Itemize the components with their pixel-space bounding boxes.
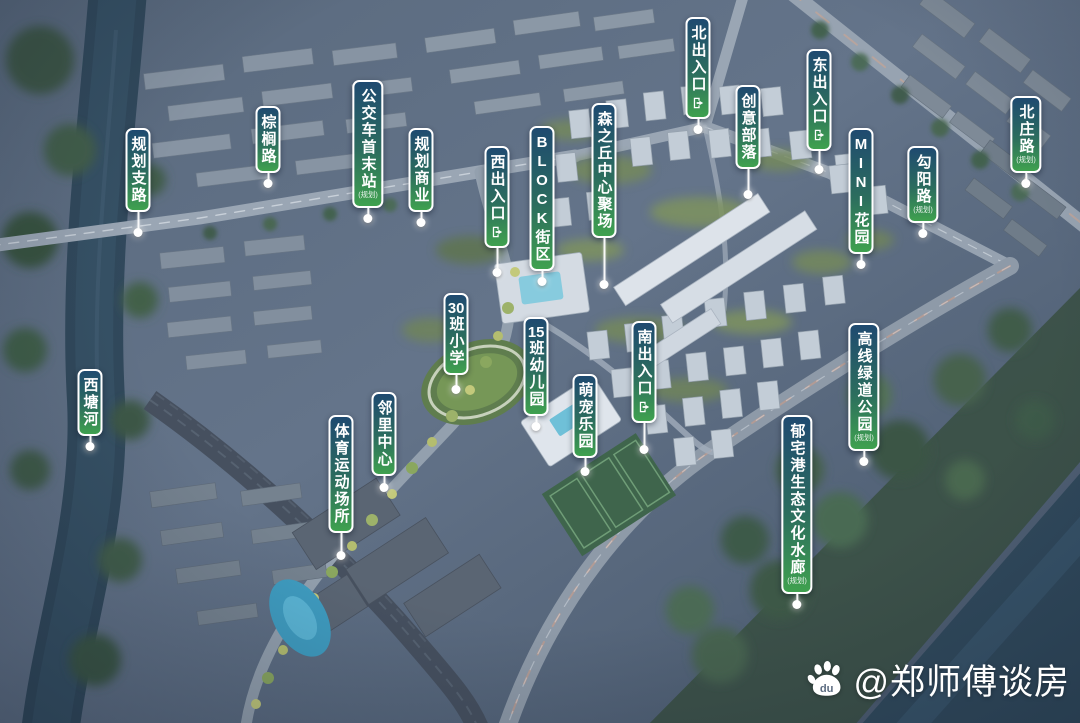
map-label-block-street: BLOCK街区	[530, 126, 555, 286]
label-pill: 西出入口	[485, 146, 510, 248]
map-label-east-entrance: 东出入口	[807, 49, 832, 174]
label-text: 郁宅港生态文化水廊	[789, 423, 804, 576]
label-pill: 勾阳路(规划)	[907, 146, 938, 223]
label-pill: 北出入口	[686, 17, 711, 119]
site-plan-rendering: 规划支路棕榈路公交车首末站(规划)规划商业西出入口BLOCK街区森之丘中心聚场北…	[0, 0, 1080, 723]
watermark-text: @郑师傅谈房	[853, 654, 1070, 705]
leader-line	[367, 208, 369, 215]
anchor-dot	[380, 483, 389, 492]
label-pill: 森之丘中心聚场	[592, 103, 617, 238]
label-note: (规划)	[854, 433, 874, 442]
label-text: 北出入口	[691, 25, 706, 93]
label-text: 规划支路	[131, 136, 146, 204]
label-pill: 郁宅港生态文化水廊(规划)	[781, 415, 812, 594]
label-note: (规划)	[787, 576, 807, 585]
map-label-mini-garden: MINI花园	[849, 128, 874, 269]
label-pill: 规划支路	[126, 128, 151, 212]
exit-icon	[490, 225, 504, 239]
map-label-primary-school: 30班小学	[444, 293, 469, 394]
leader-line	[818, 151, 820, 166]
label-text: 北庄路	[1018, 104, 1033, 155]
label-pill: 西塘河	[78, 369, 103, 436]
leader-line	[340, 533, 342, 552]
anchor-dot	[363, 214, 372, 223]
svg-text:du: du	[820, 682, 834, 694]
anchor-dot	[532, 422, 541, 431]
leader-line	[643, 423, 645, 446]
baidu-paw-icon: du	[805, 659, 847, 701]
label-text: 规划商业	[414, 136, 429, 204]
label-pill: 创意部落	[736, 85, 761, 169]
leader-line	[535, 416, 537, 423]
exit-icon	[637, 400, 651, 414]
label-pill: 高线绿道公园(规划)	[848, 323, 879, 451]
label-text: 邻里中心	[377, 400, 392, 468]
map-label-beizhuang-road: 北庄路(规划)	[1010, 96, 1041, 188]
label-text: 棕榈路	[261, 114, 276, 165]
map-label-north-entrance: 北出入口	[686, 17, 711, 134]
map-label-sports-area: 体育运动场所	[329, 415, 354, 560]
label-text: 西塘河	[83, 377, 98, 428]
map-label-yuzhai-eco-corridor: 郁宅港生态文化水廊(规划)	[781, 415, 812, 609]
anchor-dot	[859, 457, 868, 466]
map-label-forest-hill-plaza: 森之丘中心聚场	[592, 103, 617, 289]
map-label-kindergarten: 15班幼儿园	[524, 317, 549, 431]
label-text: 东出入口	[812, 57, 827, 125]
map-label-guihua-zhilu: 规划支路	[126, 128, 151, 237]
map-label-pet-park: 萌宠乐园	[573, 374, 598, 476]
anchor-dot	[452, 385, 461, 394]
label-pill: BLOCK街区	[530, 126, 555, 271]
label-pill: 萌宠乐园	[573, 374, 598, 458]
leader-line	[584, 458, 586, 468]
anchor-dot	[600, 280, 609, 289]
leader-line	[1025, 173, 1027, 180]
leader-line	[922, 223, 924, 230]
label-text: 森之丘中心聚场	[597, 111, 612, 230]
label-pill: 15班幼儿园	[524, 317, 549, 416]
label-text: 萌宠乐园	[578, 382, 593, 450]
leader-line	[267, 173, 269, 180]
label-text: 体育运动场所	[334, 423, 349, 525]
anchor-dot	[640, 445, 649, 454]
map-label-highline-greenway-park: 高线绿道公园(规划)	[848, 323, 879, 466]
label-pill: 北庄路(规划)	[1010, 96, 1041, 173]
label-pill: 公交车首末站(规划)	[352, 80, 383, 208]
anchor-dot	[264, 179, 273, 188]
label-text: BLOCK街区	[535, 134, 550, 263]
label-pill: 体育运动场所	[329, 415, 354, 533]
leader-line	[747, 169, 749, 191]
label-pill: 邻里中心	[372, 392, 397, 476]
label-text: 高线绿道公园	[856, 331, 871, 433]
anchor-dot	[417, 218, 426, 227]
label-pill: MINI花园	[849, 128, 874, 254]
anchor-dot	[337, 551, 346, 560]
exit-icon	[691, 96, 705, 110]
label-pill: 棕榈路	[256, 106, 281, 173]
leader-line	[697, 119, 699, 126]
watermark: du @郑师傅谈房	[805, 654, 1070, 705]
label-text: 西出入口	[490, 154, 505, 222]
map-label-xitang-river: 西塘河	[78, 369, 103, 451]
anchor-dot	[538, 277, 547, 286]
leader-line	[89, 436, 91, 443]
map-label-gouyang-road: 勾阳路(规划)	[907, 146, 938, 238]
label-text: 公交车首末站	[360, 88, 375, 190]
label-text: MINI花园	[854, 136, 869, 246]
leader-line	[420, 212, 422, 219]
anchor-dot	[86, 442, 95, 451]
leader-line	[496, 248, 498, 269]
anchor-dot	[493, 268, 502, 277]
anchor-dot	[744, 190, 753, 199]
map-label-bus-terminus: 公交车首末站(规划)	[352, 80, 383, 223]
map-label-guihua-shangye: 规划商业	[409, 128, 434, 227]
label-note: (规划)	[1016, 155, 1036, 164]
label-text: 勾阳路	[915, 154, 930, 205]
leader-line	[603, 238, 605, 281]
leader-line	[860, 254, 862, 261]
anchor-dot	[792, 600, 801, 609]
label-text: 南出入口	[637, 329, 652, 397]
leader-line	[383, 476, 385, 484]
leader-line	[863, 451, 865, 458]
map-label-neighborhood-center: 邻里中心	[372, 392, 397, 492]
label-text: 30班小学	[449, 301, 464, 367]
map-label-creative-tribe: 创意部落	[736, 85, 761, 199]
anchor-dot	[134, 228, 143, 237]
leader-line	[455, 375, 457, 386]
map-label-south-entrance: 南出入口	[632, 321, 657, 454]
map-label-zonglv-road: 棕榈路	[256, 106, 281, 188]
anchor-dot	[918, 229, 927, 238]
label-pill: 30班小学	[444, 293, 469, 375]
anchor-dot	[581, 467, 590, 476]
label-pill: 规划商业	[409, 128, 434, 212]
label-text: 15班幼儿园	[529, 325, 544, 408]
label-pill: 南出入口	[632, 321, 657, 423]
leader-line	[137, 212, 139, 229]
anchor-dot	[815, 165, 824, 174]
exit-icon	[812, 128, 826, 142]
leader-line	[541, 271, 543, 278]
leader-line	[796, 594, 798, 601]
map-label-west-entrance: 西出入口	[485, 146, 510, 277]
label-note: (规划)	[358, 190, 378, 199]
label-pill: 东出入口	[807, 49, 832, 151]
anchor-dot	[857, 260, 866, 269]
label-note: (规划)	[913, 205, 933, 214]
anchor-dot	[694, 125, 703, 134]
map-labels: 规划支路棕榈路公交车首末站(规划)规划商业西出入口BLOCK街区森之丘中心聚场北…	[0, 0, 1080, 723]
anchor-dot	[1021, 179, 1030, 188]
label-text: 创意部落	[741, 93, 756, 161]
